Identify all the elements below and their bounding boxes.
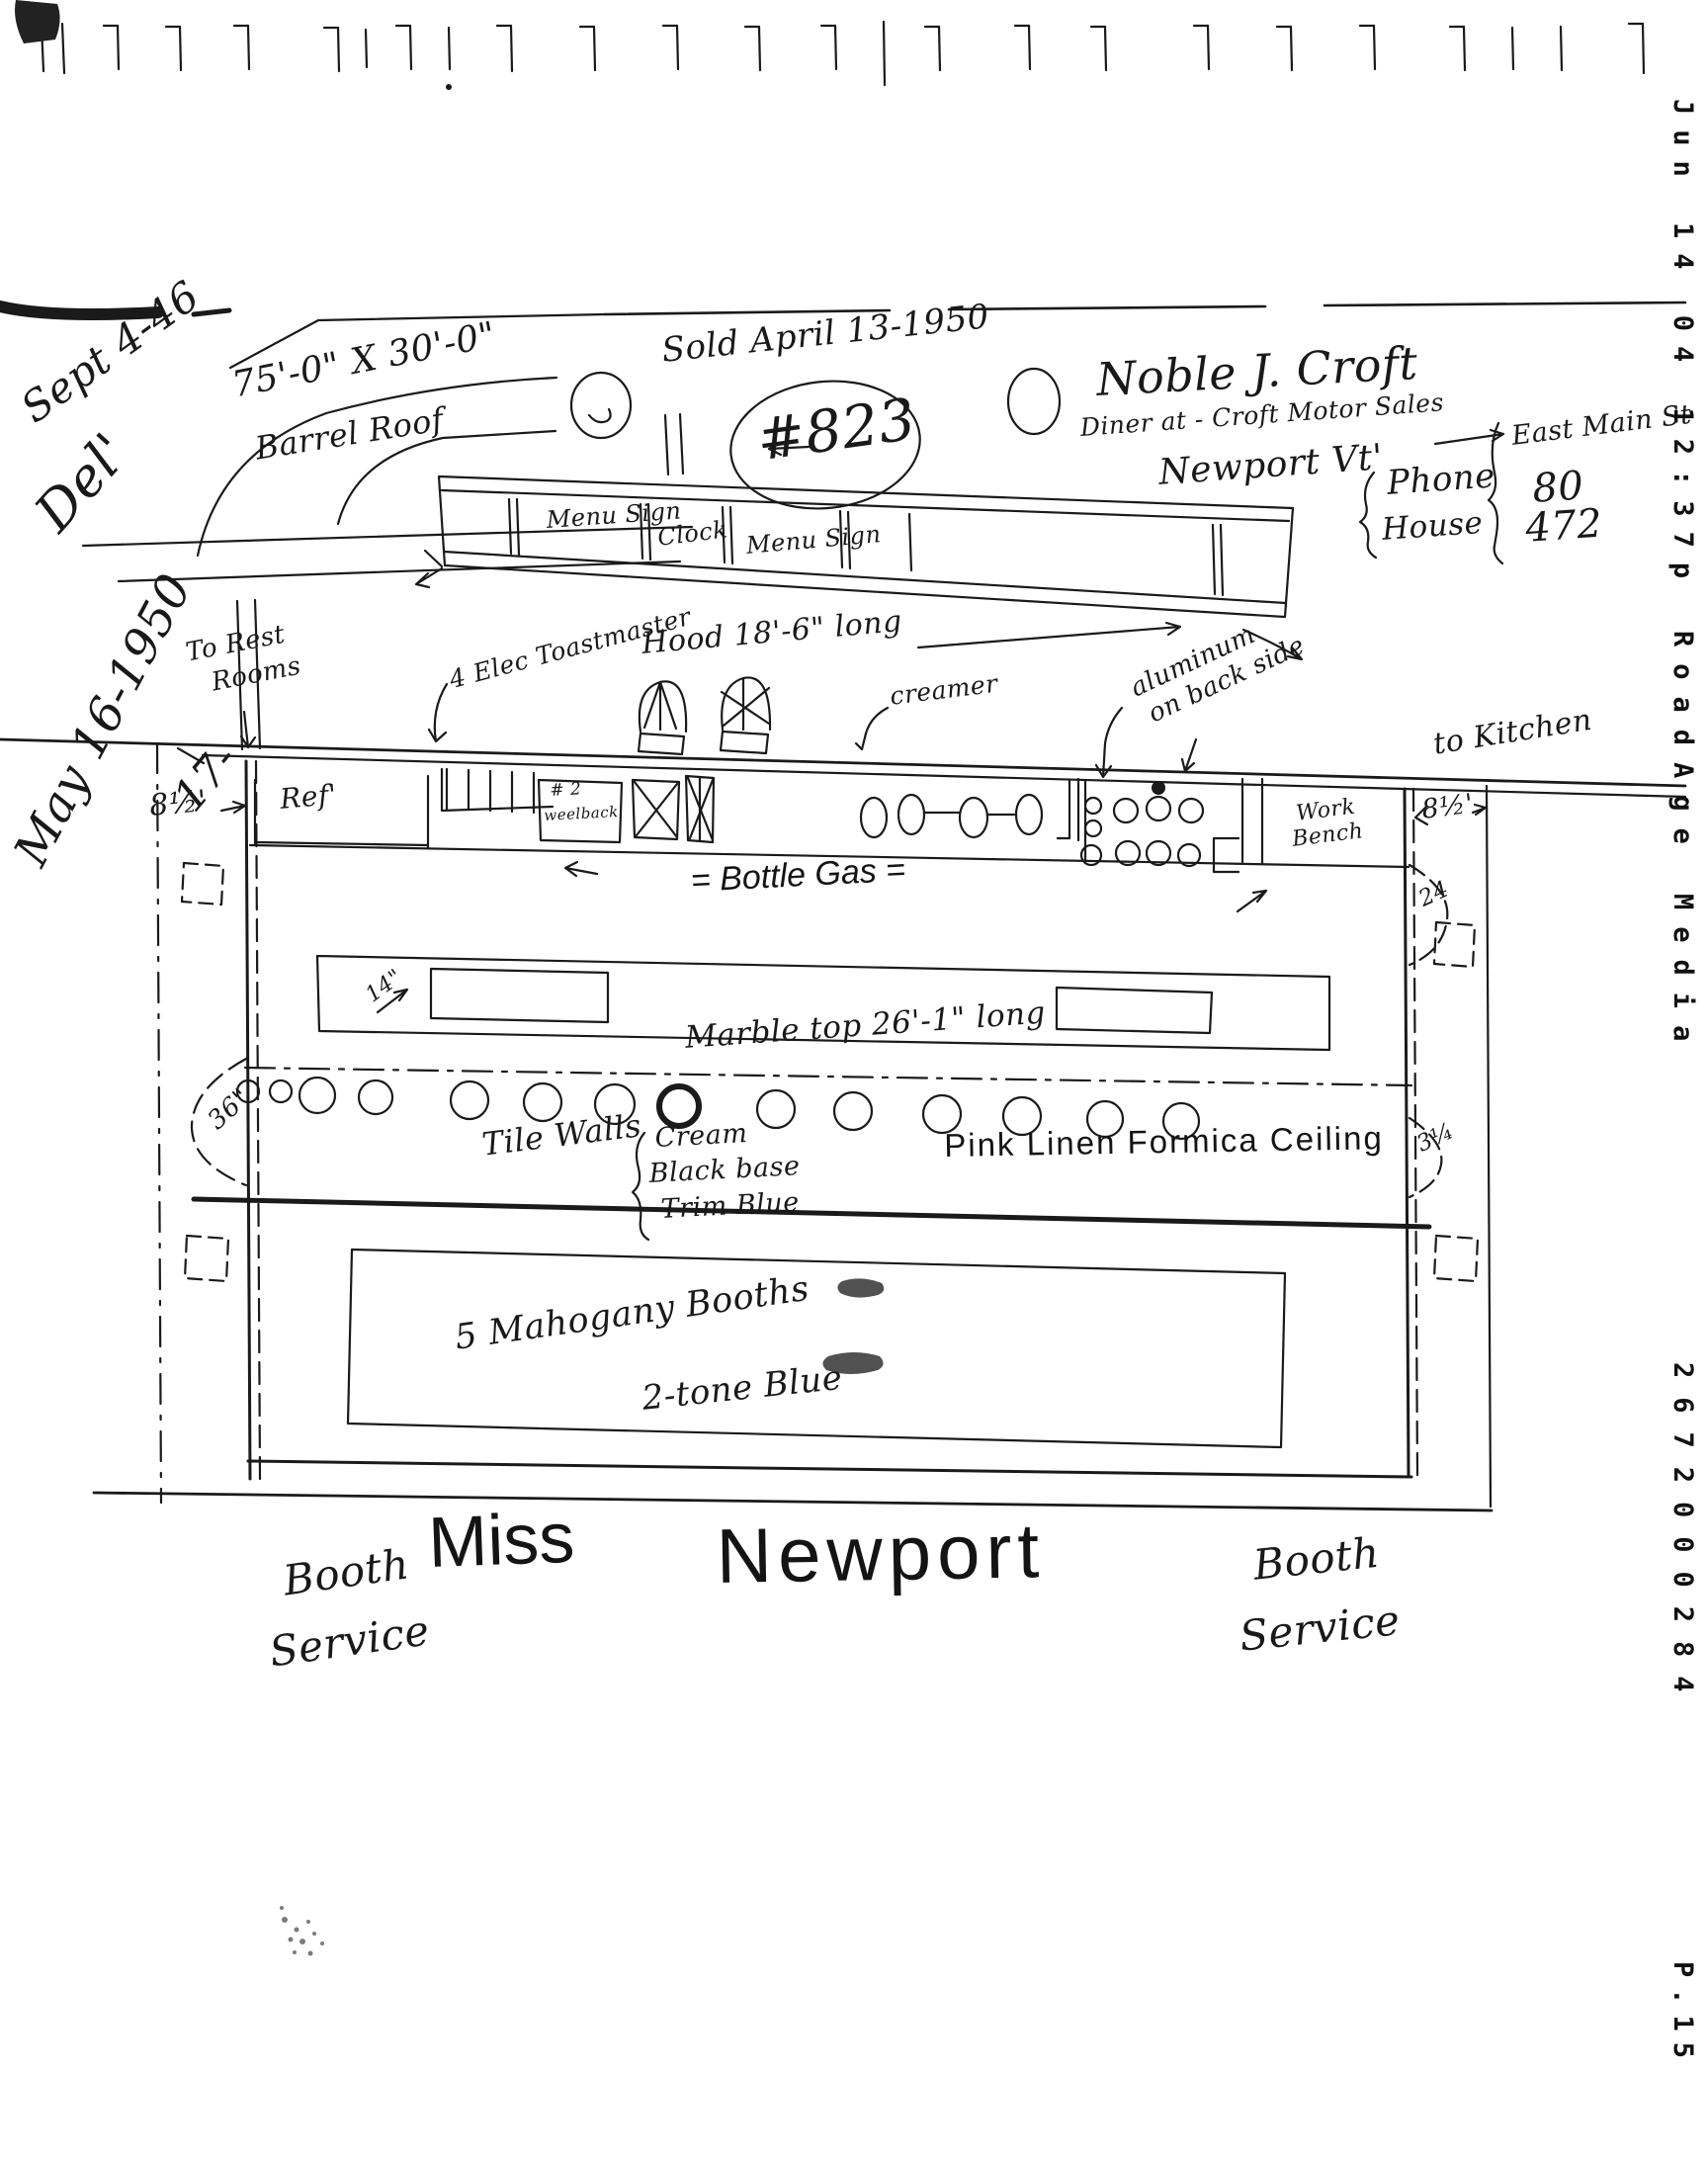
fax-number: 2672000284 — [1668, 1362, 1696, 1711]
stipple-smudge — [280, 1906, 324, 1956]
phone-label: Phone — [1386, 459, 1496, 501]
house-value: 472 — [1524, 503, 1604, 550]
ceiling-note: Pink Linen Formica Ceiling — [944, 1121, 1384, 1163]
booth-area — [194, 1199, 1429, 1447]
fax-scan-marks — [15, 0, 1644, 90]
weelback-line1: # 2 — [550, 781, 582, 800]
tile-color-1: Cream — [654, 1120, 748, 1153]
fax-page: P.15 — [1668, 1961, 1696, 2069]
newport-title: Newport — [716, 1511, 1046, 1597]
wall-vent-fans — [639, 677, 770, 754]
miss-title: Miss — [427, 1502, 576, 1582]
house-label: House — [1381, 507, 1484, 547]
fax-datetime: Jun 14 04 12:37p — [1668, 99, 1696, 593]
fax-scanned-diner-plan: Sept 4-46 Del' May 16-1950 17- 75'-0" X … — [0, 0, 1708, 2158]
tile-walls-brace — [633, 1133, 648, 1240]
dim-left-end: 8½' — [148, 786, 208, 821]
ref-label: Ref' — [279, 780, 338, 814]
dim-right-end: 8½' — [1420, 791, 1475, 825]
fax-station: RoadAge Media — [1668, 631, 1696, 1058]
